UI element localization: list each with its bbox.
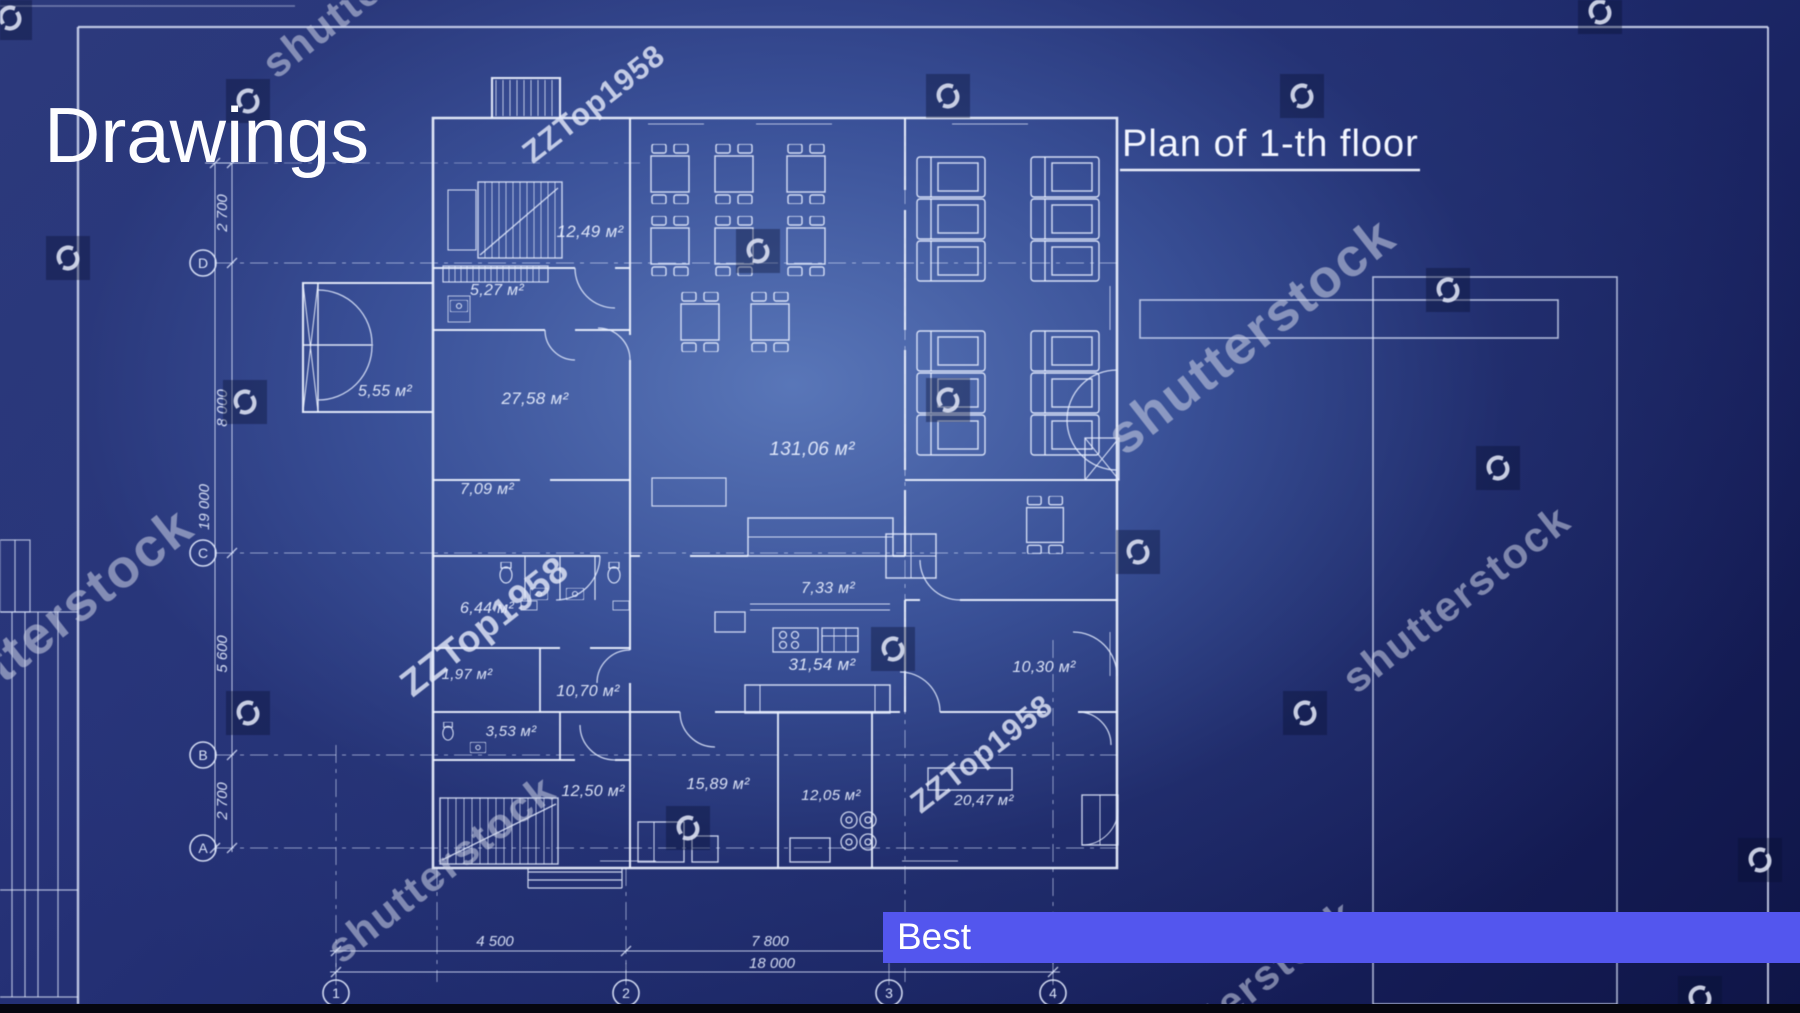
watermark-brand-text: shutterstock: [0, 495, 205, 757]
dim-bottom-1: 4 500: [476, 933, 514, 950]
best-banner-label: Best: [897, 916, 971, 957]
axis-col-3: 3: [885, 985, 893, 1001]
shutterstock-logo-icon: [1280, 74, 1324, 118]
room-label: 12,50 м²: [561, 783, 625, 800]
shutterstock-logo-icon: [1738, 838, 1782, 882]
shutterstock-logo-icon: [926, 74, 970, 118]
watermark-brand-text: shutterstock: [1095, 205, 1406, 467]
watermark-brand-text: shutterstock: [1333, 495, 1579, 702]
shutterstock-logo-icon: [1116, 530, 1160, 574]
dim-bottom-2: 7 800: [751, 933, 789, 950]
room-label: 12,05 м²: [801, 787, 861, 804]
axis-row-d: D: [198, 255, 208, 271]
dim-left-total: 19 000: [196, 483, 213, 530]
axis-row-c: C: [198, 545, 208, 561]
window-lines: [600, 124, 1110, 861]
shutterstock-logo-icon: [736, 229, 780, 273]
room-label: 5,27 м²: [470, 282, 524, 299]
shutterstock-logo-icon: [1426, 268, 1470, 312]
shutterstock-logo-icon: [226, 691, 270, 735]
axis-row-b: B: [198, 747, 207, 763]
slide: D C B A 1 2 3 4 2 700 8 000 5 600 2 700 …: [0, 0, 1800, 1013]
room-label: 31,54 м²: [789, 655, 857, 674]
room-label: 27,58 м²: [501, 389, 570, 408]
shutterstock-logo-icon: [666, 806, 710, 850]
shutterstock-logo-icon: [1283, 691, 1327, 735]
stairs: [440, 80, 562, 864]
shutterstock-logo-icon: [46, 236, 90, 280]
furniture: [528, 144, 1119, 888]
dim-left-4: 2 700: [214, 782, 231, 821]
watermark-brand-text: shutterstock: [253, 0, 499, 87]
bottom-black-strip: [0, 1004, 1800, 1013]
shutterstock-logo-icon: [926, 378, 970, 422]
room-label: 12,49 м²: [557, 222, 625, 241]
axis-col-2: 2: [622, 985, 630, 1001]
room-label: 5,55 м²: [358, 383, 412, 400]
grid-bubbles: [190, 250, 1066, 1006]
room-label: 10,30 м²: [1012, 659, 1076, 676]
shutterstock-logo-icon: [1476, 446, 1520, 490]
room-label: 131,06 м²: [769, 439, 855, 460]
watermark-user-text: ZZTop1958: [516, 37, 672, 169]
room-label: 3,53 м²: [486, 723, 537, 740]
shutterstock-logo-icon: [1578, 0, 1622, 34]
shutterstock-logo-icon: [871, 627, 915, 671]
room-label: 15,89 м²: [686, 776, 750, 793]
shutterstock-logo-icon: [223, 380, 267, 424]
best-banner: Best: [883, 912, 1800, 963]
axis-row-a: A: [198, 840, 208, 856]
axis-col-4: 4: [1049, 985, 1057, 1001]
room-label: 7,09 м²: [460, 481, 514, 498]
room-label: 20,47 м²: [953, 792, 1014, 809]
dim-left-3: 5 600: [214, 635, 231, 673]
room-label: 10,70 м²: [556, 683, 620, 700]
room-label: 7,33 м²: [801, 580, 855, 597]
drawing-title-group: Plan of 1-th floor: [1120, 123, 1420, 170]
axis-col-1: 1: [332, 985, 340, 1001]
dim-left-1: 2 700: [214, 194, 231, 233]
room-labels: 12,49 м² 5,27 м² 5,55 м² 27,58 м² 7,09 м…: [358, 222, 1076, 809]
shutterstock-logo-icon: [0, 0, 32, 40]
grid-bubble-labels: D C B A 1 2 3 4: [198, 255, 1057, 1001]
drawing-title: Plan of 1-th floor: [1122, 123, 1419, 165]
slide-title: Drawings: [44, 96, 369, 174]
dim-bottom-total: 18 000: [749, 955, 796, 972]
